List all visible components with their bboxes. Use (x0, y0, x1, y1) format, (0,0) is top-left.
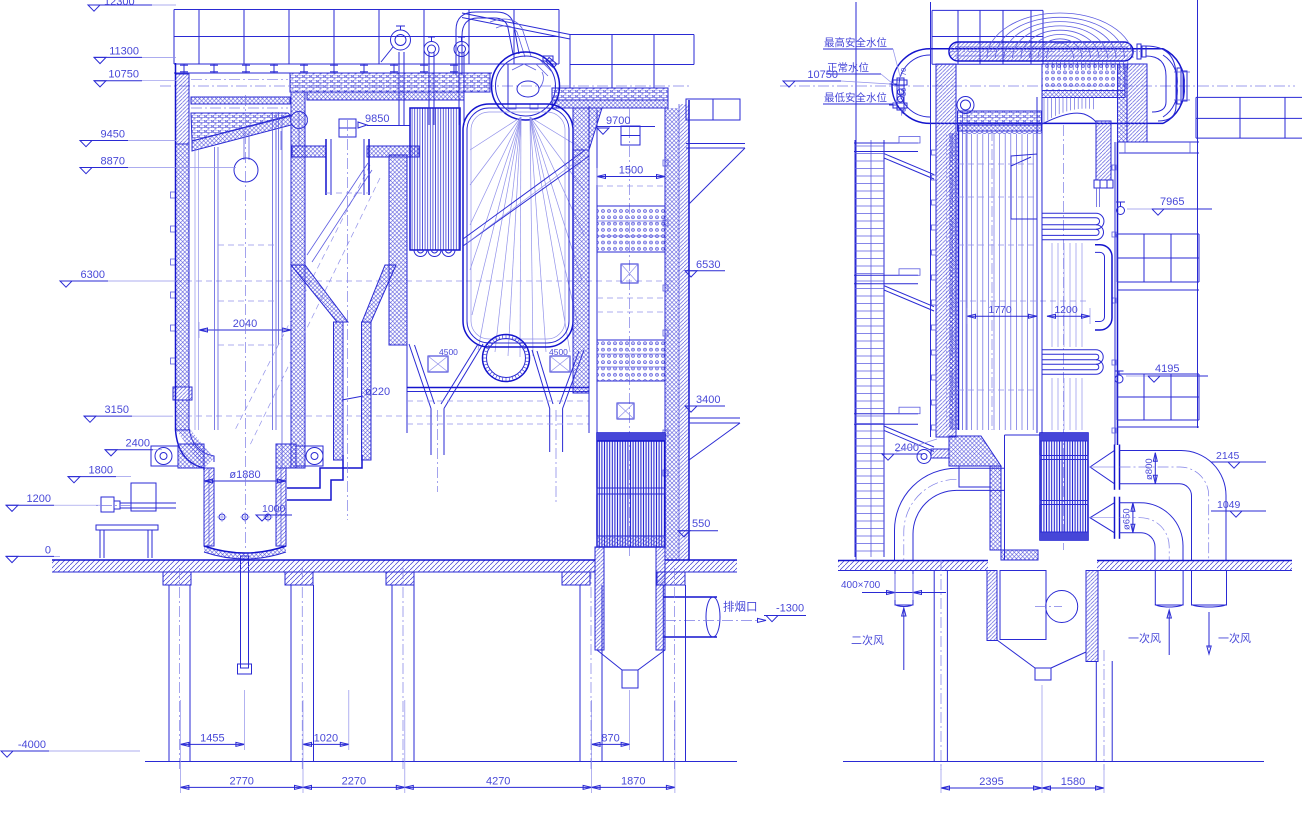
svg-text:3150: 3150 (105, 404, 129, 416)
svg-text:1800: 1800 (89, 465, 113, 477)
svg-text:12300: 12300 (104, 0, 135, 8)
svg-text:9700: 9700 (606, 115, 630, 127)
svg-text:400×700: 400×700 (841, 580, 881, 591)
svg-text:1500: 1500 (619, 165, 643, 177)
svg-text:2270: 2270 (342, 775, 366, 787)
svg-text:2145: 2145 (1216, 450, 1240, 462)
svg-text:870: 870 (601, 732, 619, 744)
svg-text:1049: 1049 (1217, 499, 1241, 511)
svg-text:-4000: -4000 (18, 739, 46, 751)
svg-text:ø650: ø650 (1122, 508, 1133, 530)
svg-text:ø220: ø220 (365, 386, 390, 398)
svg-text:8870: 8870 (101, 156, 125, 168)
svg-text:1455: 1455 (200, 732, 224, 744)
svg-text:550: 550 (692, 518, 710, 530)
svg-text:6300: 6300 (81, 269, 105, 281)
svg-text:70: 70 (899, 68, 908, 76)
svg-text:6530: 6530 (696, 259, 720, 271)
svg-text:2400: 2400 (126, 438, 150, 450)
svg-text:1580: 1580 (1061, 776, 1085, 788)
svg-text:11300: 11300 (109, 45, 139, 57)
svg-text:最高安全水位: 最高安全水位 (824, 36, 887, 49)
svg-text:2395: 2395 (979, 776, 1003, 788)
svg-text:4500: 4500 (549, 347, 568, 357)
svg-text:4270: 4270 (486, 775, 510, 787)
svg-text:9450: 9450 (101, 129, 125, 141)
svg-text:一次风: 一次风 (1218, 631, 1251, 645)
svg-text:1870: 1870 (621, 775, 645, 787)
svg-text:1200: 1200 (1054, 304, 1078, 316)
svg-text:2770: 2770 (229, 775, 253, 787)
svg-text:排烟口: 排烟口 (723, 600, 758, 614)
svg-text:3400: 3400 (696, 394, 720, 406)
svg-text:50: 50 (899, 88, 908, 96)
svg-text:10750: 10750 (108, 69, 139, 81)
svg-text:2040: 2040 (233, 318, 257, 330)
svg-text:1200: 1200 (27, 493, 51, 505)
svg-text:1000: 1000 (262, 503, 286, 515)
svg-text:最低安全水位: 最低安全水位 (824, 91, 887, 104)
svg-text:1020: 1020 (314, 732, 338, 744)
svg-text:7965: 7965 (1160, 196, 1184, 208)
svg-text:ø800: ø800 (1144, 458, 1155, 480)
svg-text:二次风: 二次风 (851, 633, 884, 647)
svg-text:0: 0 (45, 544, 51, 556)
svg-text:-1300: -1300 (776, 603, 804, 615)
svg-text:ø1880: ø1880 (229, 469, 260, 481)
svg-text:一次风: 一次风 (1128, 631, 1161, 645)
svg-text:9850: 9850 (365, 113, 389, 125)
svg-text:1770: 1770 (988, 304, 1012, 316)
svg-text:2400: 2400 (895, 442, 919, 454)
svg-text:70: 70 (899, 108, 908, 116)
svg-text:4500: 4500 (439, 347, 458, 357)
svg-text:4195: 4195 (1155, 363, 1179, 375)
svg-text:10750: 10750 (807, 69, 838, 81)
